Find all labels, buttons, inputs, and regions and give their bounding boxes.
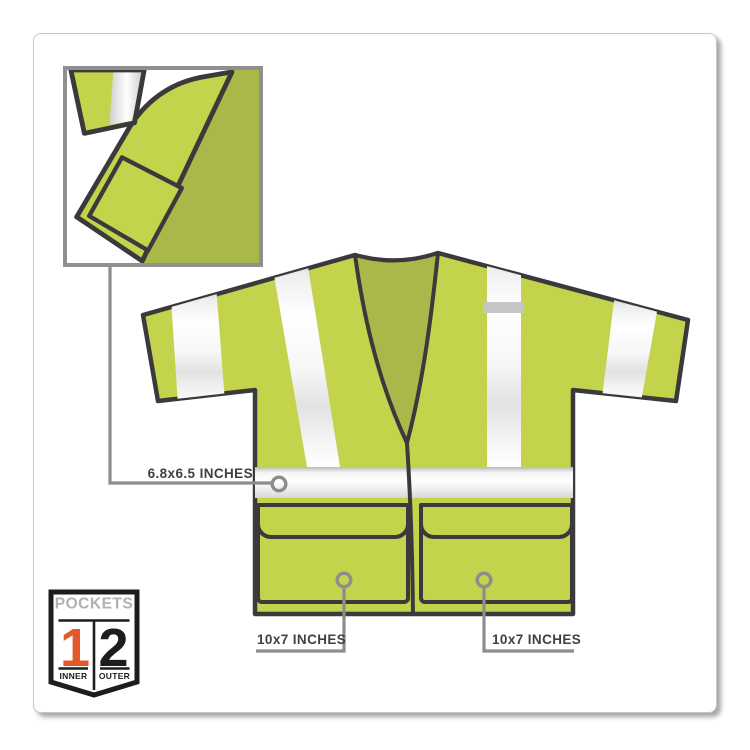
vest-body	[143, 238, 688, 614]
badge-tab	[483, 302, 524, 313]
badge-title: POCKETS	[55, 596, 133, 613]
badge-inner-label: INNER	[60, 671, 88, 681]
pockets-badge: POCKETS 1 2 INNER OUTER	[48, 589, 140, 699]
callout-right-pocket-size: 10x7 INCHES	[492, 632, 581, 647]
detail-inset	[63, 66, 263, 267]
waist-stripe	[255, 467, 573, 498]
pocket-right	[421, 505, 572, 602]
callout-left-pocket-size: 10x7 INCHES	[257, 632, 346, 647]
callout-inner-pocket-size: 6.8x6.5 INCHES	[100, 466, 253, 481]
inner-pocket-detail	[67, 70, 259, 263]
pocket-left-flap	[258, 505, 408, 537]
badge-outer-label: OUTER	[99, 671, 130, 681]
pocket-right-flap	[421, 505, 572, 537]
pocket-left	[258, 505, 408, 602]
pockets-badge-shield: POCKETS 1 2 INNER OUTER	[48, 589, 140, 699]
